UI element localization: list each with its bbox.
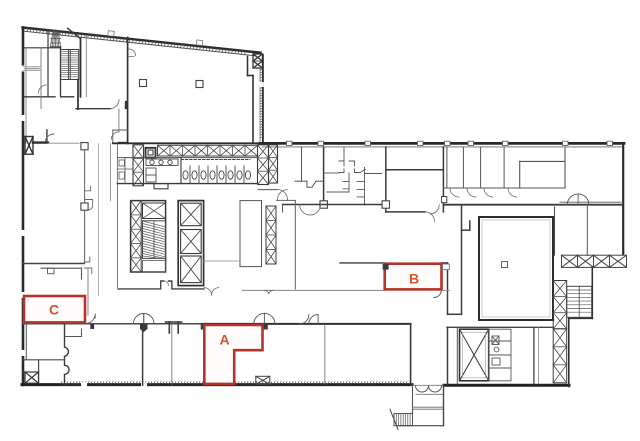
- svg-text:C: C: [49, 302, 59, 318]
- svg-text:A: A: [219, 332, 229, 348]
- svg-text:B: B: [409, 271, 419, 287]
